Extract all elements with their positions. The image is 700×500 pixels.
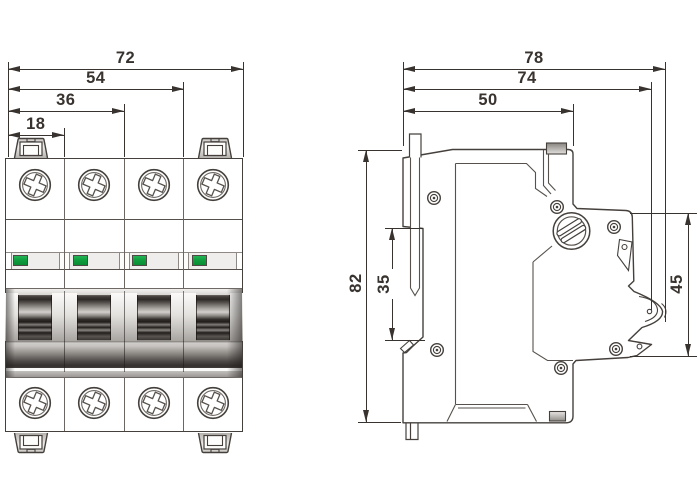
dimension-label: 36 — [56, 91, 75, 110]
arrow-right-icon — [112, 108, 124, 114]
cover-notch-edge — [11, 253, 12, 269]
arrow-down-icon — [363, 410, 369, 422]
dimension-front-pole-width: 18 — [8, 135, 64, 136]
dimension-side-front-height — [688, 213, 689, 356]
toggle-handle-pole1 — [18, 295, 52, 340]
dimension-label: 54 — [86, 69, 105, 88]
terminal-screw-bottom-pole3 — [137, 386, 171, 420]
dimension-label: 82 — [347, 268, 365, 298]
side-view — [390, 125, 700, 455]
extension-line — [358, 422, 401, 423]
status-indicator-pole1 — [13, 255, 28, 266]
din-clip-top-left — [12, 137, 50, 159]
recess-shade-right — [227, 289, 242, 377]
arrow-up-icon — [685, 213, 691, 225]
arrow-up-icon — [363, 150, 369, 162]
status-indicator-pole3 — [132, 255, 147, 266]
pole-separator-band — [183, 291, 184, 372]
arrow-right-icon — [639, 86, 651, 92]
side-terminal-screw — [553, 213, 590, 250]
top-stop-tab — [547, 143, 567, 154]
din-clip-side-bottom — [406, 423, 418, 440]
toggle-handle-pole4 — [196, 295, 230, 340]
arrow-right-icon — [653, 66, 665, 72]
arrow-right-icon — [561, 108, 573, 114]
dimension-label: 18 — [26, 115, 45, 134]
extension-line — [630, 356, 697, 357]
extension-line — [64, 128, 65, 157]
terminal-screw-bottom-pole2 — [77, 386, 111, 420]
arrow-right-icon — [231, 66, 243, 72]
terminal-screw-top-pole2 — [77, 168, 111, 202]
pole-separator-band — [64, 291, 65, 372]
arrow-left-icon — [403, 108, 415, 114]
dimension-label: 35 — [375, 269, 393, 299]
arrow-down-icon — [685, 344, 691, 356]
dimension-label: 50 — [478, 91, 497, 110]
terminal-screw-top-pole1 — [18, 168, 52, 202]
dimension-side-height — [366, 150, 367, 422]
toggle-handle-pole2 — [77, 295, 111, 340]
dimension-label: 72 — [116, 49, 135, 68]
arrow-left-icon — [8, 66, 20, 72]
terminal-screw-top-pole4 — [196, 168, 230, 202]
extension-line — [243, 62, 244, 157]
arrow-right-icon — [172, 86, 184, 92]
dimension-front-three-pole: 54 — [8, 89, 184, 90]
extension-line — [403, 62, 404, 146]
arrow-left-icon — [8, 108, 20, 114]
status-indicator-pole2 — [73, 255, 88, 266]
arrow-left-icon — [8, 86, 20, 92]
din-clip-bottom-right — [196, 432, 234, 454]
terminal-screw-bottom-pole1 — [18, 386, 52, 420]
din-slider-bar — [411, 158, 420, 296]
din-slider-hook — [410, 134, 422, 158]
recess-shade-left — [6, 289, 15, 377]
pole-separator-band — [124, 291, 125, 372]
drawing-canvas: 72 54 36 18 78 74 50 82 35 — [0, 0, 700, 500]
dimension-label: 78 — [524, 49, 543, 68]
status-indicator-pole4 — [192, 255, 207, 266]
arrow-up-icon — [389, 228, 395, 240]
recess-bottom-line — [6, 377, 242, 378]
extension-line — [665, 62, 666, 322]
dimension-front-two-pole: 36 — [8, 111, 124, 112]
extension-line — [385, 340, 425, 341]
extension-line — [651, 82, 652, 310]
toggle-handle-pole3 — [137, 295, 171, 340]
terminal-screw-bottom-pole4 — [196, 386, 230, 420]
dimension-front-total-width: 72 — [8, 69, 243, 70]
extension-line — [124, 104, 125, 157]
arrow-right-icon — [52, 132, 64, 138]
arrow-left-icon — [8, 132, 20, 138]
terminal-screw-top-pole3 — [137, 168, 171, 202]
dimension-label: 45 — [668, 269, 686, 299]
dimension-label: 74 — [517, 69, 536, 88]
dimension-side-depth-no-clip: 74 — [403, 89, 651, 90]
arrow-left-icon — [403, 86, 415, 92]
din-clip-top-right — [196, 137, 234, 159]
dimension-side-base-depth: 50 — [403, 111, 573, 112]
din-clip-bottom-left — [12, 432, 50, 454]
arrow-down-icon — [389, 328, 395, 340]
arrow-left-icon — [403, 66, 415, 72]
extension-line — [183, 82, 184, 157]
bottom-stop-tab — [550, 412, 566, 422]
cover-notch-edge — [236, 253, 237, 269]
